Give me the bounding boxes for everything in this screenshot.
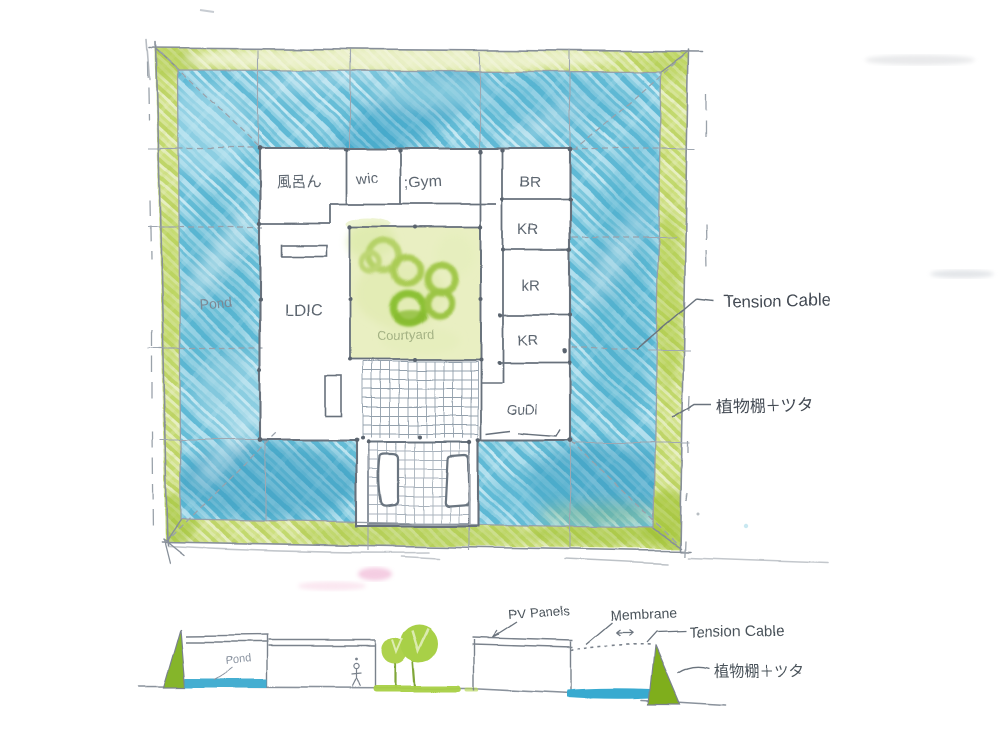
svg-text:植物棚＋ツタ: 植物棚＋ツタ <box>717 396 813 416</box>
svg-text:Courtyard: Courtyard <box>376 326 434 344</box>
svg-text:LDIC: LDIC <box>284 300 323 319</box>
svg-text:風呂ん: 風呂ん <box>277 173 323 192</box>
svg-text:KR: KR <box>517 332 538 349</box>
svg-text:Pond: Pond <box>198 295 232 313</box>
svg-text:GuDl: GuDl <box>506 401 538 417</box>
svg-text:Tension Cable: Tension Cable <box>723 290 831 311</box>
svg-text:BR: BR <box>520 173 541 190</box>
svg-text:;Gym: ;Gym <box>403 173 442 192</box>
svg-text:kR: kR <box>521 277 540 294</box>
svg-text:wic: wic <box>355 169 380 188</box>
svg-text:植物棚＋ツタ: 植物棚＋ツタ <box>714 663 804 680</box>
svg-text:KR: KR <box>518 222 539 239</box>
svg-text:Tension Cable: Tension Cable <box>689 623 784 642</box>
